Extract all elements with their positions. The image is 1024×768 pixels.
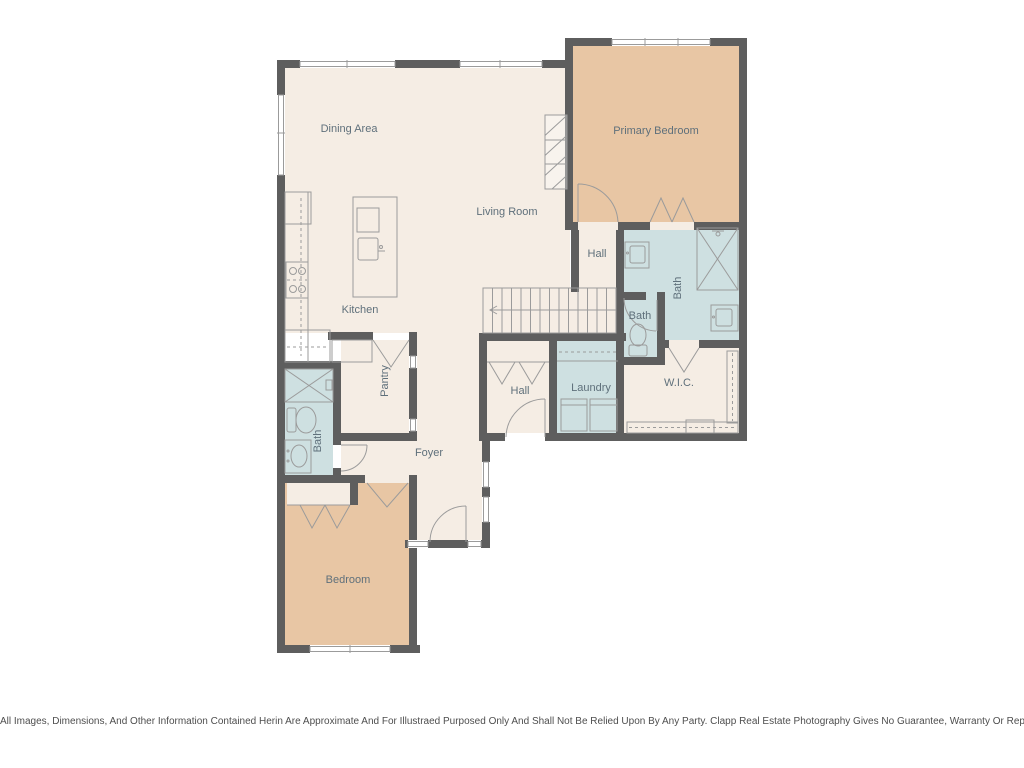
label-pantry: Pantry [379,365,391,397]
window-living-top [460,60,542,68]
label-bath-lower: Bath [312,430,324,453]
label-wic: W.I.C. [664,377,694,389]
window-bedroom-bottom [310,645,390,653]
label-laundry: Laundry [571,382,611,394]
floor-plan-page: Dining Area Living Room Primary Bedroom … [0,0,1024,768]
label-living-room: Living Room [476,206,537,218]
floor-plan-drawing: Dining Area Living Room Primary Bedroom … [0,0,1024,768]
label-kitchen: Kitchen [342,304,379,316]
label-hall-lower: Hall [511,385,530,397]
room-bedroom [285,483,409,645]
window-primary-bedroom [612,38,710,46]
label-bedroom: Bedroom [326,574,371,586]
label-dining-area: Dining Area [321,123,379,135]
label-toilet-room: Bath [629,310,652,322]
disclaimer-text: All Images, Dimensions, And Other Inform… [0,716,1024,727]
label-primary-bedroom: Primary Bedroom [613,125,699,137]
window-dining-top [300,60,395,68]
label-foyer: Foyer [415,447,443,459]
label-hall-upper: Hall [588,248,607,260]
window-dining-left [277,95,285,175]
label-primary-bath: Bath [672,277,684,300]
room-pantry [341,340,409,433]
room-foyer-corridor [417,333,483,441]
bedroom-closet-niche [287,483,350,505]
